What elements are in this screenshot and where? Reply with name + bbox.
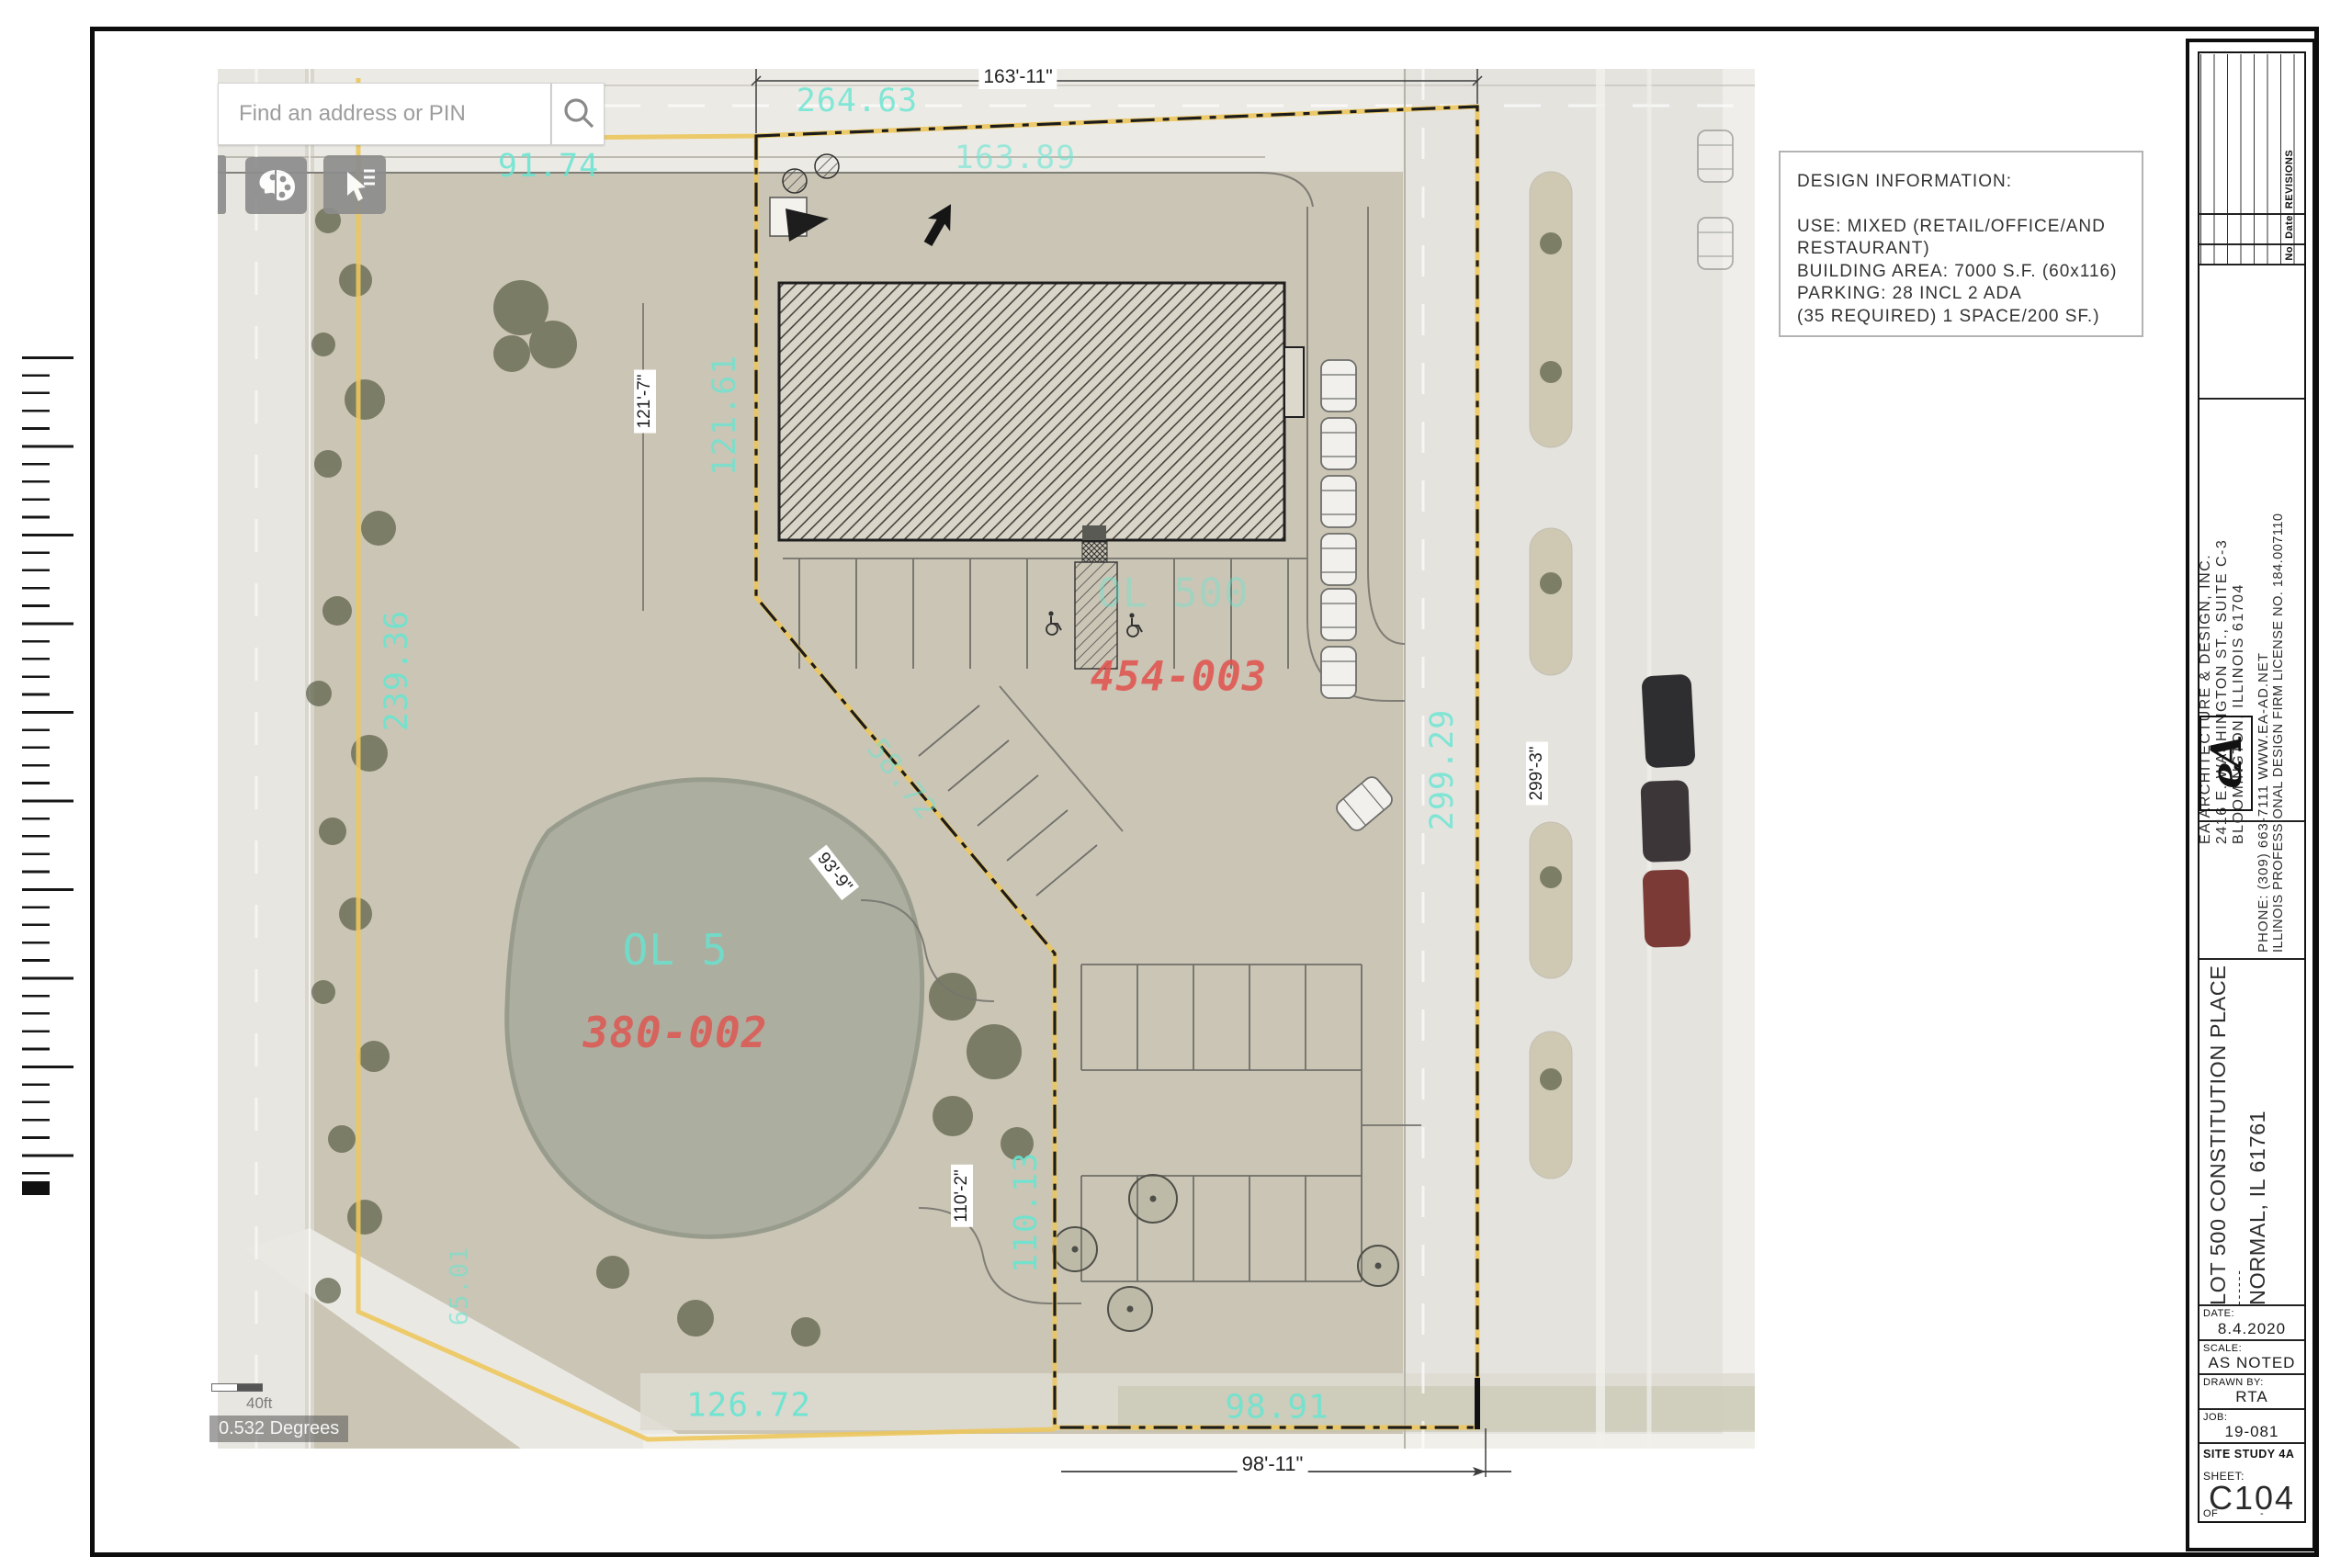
search-button[interactable] bbox=[551, 83, 605, 145]
parcel-label-ol5: OL 5 bbox=[623, 925, 729, 975]
scale-value: AS NOTED bbox=[2199, 1354, 2304, 1372]
palette-icon bbox=[245, 157, 307, 214]
design-info-title: DESIGN INFORMATION: bbox=[1797, 171, 2125, 194]
photo-cars bbox=[1640, 674, 1695, 948]
basemap-tool-button[interactable] bbox=[245, 157, 307, 214]
gis-measure-110: 110.13 bbox=[1008, 1152, 1045, 1273]
search-icon bbox=[552, 84, 605, 146]
dim-label-98: 98'-11" bbox=[1238, 1451, 1308, 1477]
gis-measure-65: 65.01 bbox=[446, 1247, 474, 1325]
job-label: JOB: bbox=[2203, 1412, 2227, 1423]
drawn-by-label: DRAWN BY: bbox=[2203, 1377, 2264, 1388]
firm-info: EA ARCHITECTURE & DESIGN, INC. 2416 E. W… bbox=[2198, 401, 2301, 953]
gis-measure-264: 264.63 bbox=[797, 83, 918, 119]
design-info-line: RESTAURANT) bbox=[1797, 238, 2125, 261]
gis-measure-98: 98.91 bbox=[1225, 1389, 1329, 1427]
firm-address: 2416 E. WASHINGTON ST., SUITE C-3 bbox=[2214, 401, 2231, 953]
site-plan-graphic bbox=[218, 69, 1755, 1449]
margin-ruler-chip bbox=[22, 1181, 50, 1195]
margin-ruler-major-ticks bbox=[22, 356, 73, 1207]
design-information-note: DESIGN INFORMATION: USE: MIXED (RETAIL/O… bbox=[1779, 151, 2143, 337]
design-info-line: USE: MIXED (RETAIL/OFFICE/AND bbox=[1797, 216, 2125, 239]
firm-name: EA ARCHITECTURE & DESIGN, INC. bbox=[2198, 401, 2214, 953]
date-label: DATE: bbox=[2203, 1308, 2234, 1319]
building-bump-out bbox=[1284, 347, 1304, 417]
revisions-no-header: No. bbox=[2284, 233, 2295, 270]
project-name: LOT 500 CONSTITUTION PLACE bbox=[2206, 956, 2231, 1305]
building-entry bbox=[1082, 525, 1106, 540]
date-value: 8.4.2020 bbox=[2199, 1320, 2304, 1338]
project-separator: ------ bbox=[2231, 956, 2245, 1305]
dim-label-north: 163'-11" bbox=[978, 65, 1057, 89]
scale-bar bbox=[211, 1383, 263, 1392]
dim-label-110: 110'-2" bbox=[951, 1165, 973, 1227]
map-viewport[interactable]: 40ft 0.532 Degrees bbox=[218, 69, 1755, 1449]
proposed-building bbox=[779, 283, 1284, 540]
drawing-sheet: 40ft 0.532 Degrees 163'-11" 264.63 163.8… bbox=[0, 0, 2352, 1568]
dim-label-299: 299'-3" bbox=[1526, 742, 1548, 806]
design-info-line: BUILDING AREA: 7000 S.F. (60x116) bbox=[1797, 261, 2125, 284]
section-divider bbox=[2199, 398, 2304, 400]
of-value: - bbox=[2260, 1508, 2264, 1519]
east-curb-strip bbox=[1723, 69, 1755, 1449]
firm-phone: PHONE: (309) 663-7111 WWW.EA-AD.NET bbox=[2256, 401, 2271, 953]
cursor-select-icon bbox=[323, 155, 386, 214]
section-divider bbox=[2199, 1408, 2304, 1410]
search-input[interactable] bbox=[219, 84, 550, 144]
ea-logo-letters: eA bbox=[2201, 717, 2251, 811]
entry-walk-hatch bbox=[1082, 542, 1107, 562]
gis-measure-121: 121.61 bbox=[707, 355, 743, 476]
select-tool-button[interactable] bbox=[323, 155, 386, 214]
gis-measure-163: 163.89 bbox=[955, 140, 1076, 176]
gis-measure-299: 299.29 bbox=[1424, 709, 1461, 830]
drawn-by-value: RTA bbox=[2199, 1388, 2304, 1406]
pin-label-380-002: 380-002 bbox=[583, 1008, 768, 1057]
job-value: 19-081 bbox=[2199, 1423, 2304, 1441]
project-title: LOT 500 CONSTITUTION PLACE ------ NORMAL… bbox=[2206, 956, 2298, 1305]
scale-bar-distance: 40ft bbox=[246, 1394, 272, 1413]
pin-label-454-003: 454-003 bbox=[1091, 654, 1267, 701]
clipped-tool-button[interactable] bbox=[218, 155, 226, 214]
gis-measure-239: 239.36 bbox=[379, 610, 415, 731]
section-divider bbox=[2199, 1339, 2304, 1341]
parcel-label-ol500: OL 500 bbox=[1098, 570, 1249, 617]
ea-logo: eA bbox=[2199, 716, 2253, 811]
revisions-header: REVISIONS bbox=[2284, 142, 2295, 216]
project-location: NORMAL, IL 61761 bbox=[2245, 956, 2270, 1305]
of-label: OF bbox=[2203, 1508, 2218, 1519]
search-input-box[interactable] bbox=[218, 83, 551, 145]
firm-license: ILLINOIS PROFESSIONAL DESIGN FIRM LICENS… bbox=[2271, 401, 2286, 953]
firm-city: BLOOMINGTON, ILLINOIS 61704 bbox=[2231, 401, 2247, 953]
section-divider bbox=[2199, 1442, 2304, 1444]
design-info-line: (35 REQUIRED) 1 SPACE/200 SF.) bbox=[1797, 306, 2125, 329]
gis-measure-91: 91.74 bbox=[498, 148, 599, 185]
study-label: SITE STUDY 4A bbox=[2203, 1448, 2294, 1461]
scale-label: SCALE: bbox=[2203, 1343, 2242, 1354]
rotation-readout: 0.532 Degrees bbox=[209, 1416, 348, 1442]
dim-label-121: 121'-7" bbox=[634, 370, 656, 434]
section-divider bbox=[2199, 1373, 2304, 1375]
gis-measure-126: 126.72 bbox=[686, 1387, 811, 1425]
design-info-line: PARKING: 28 INCL 2 ADA bbox=[1797, 283, 2125, 306]
